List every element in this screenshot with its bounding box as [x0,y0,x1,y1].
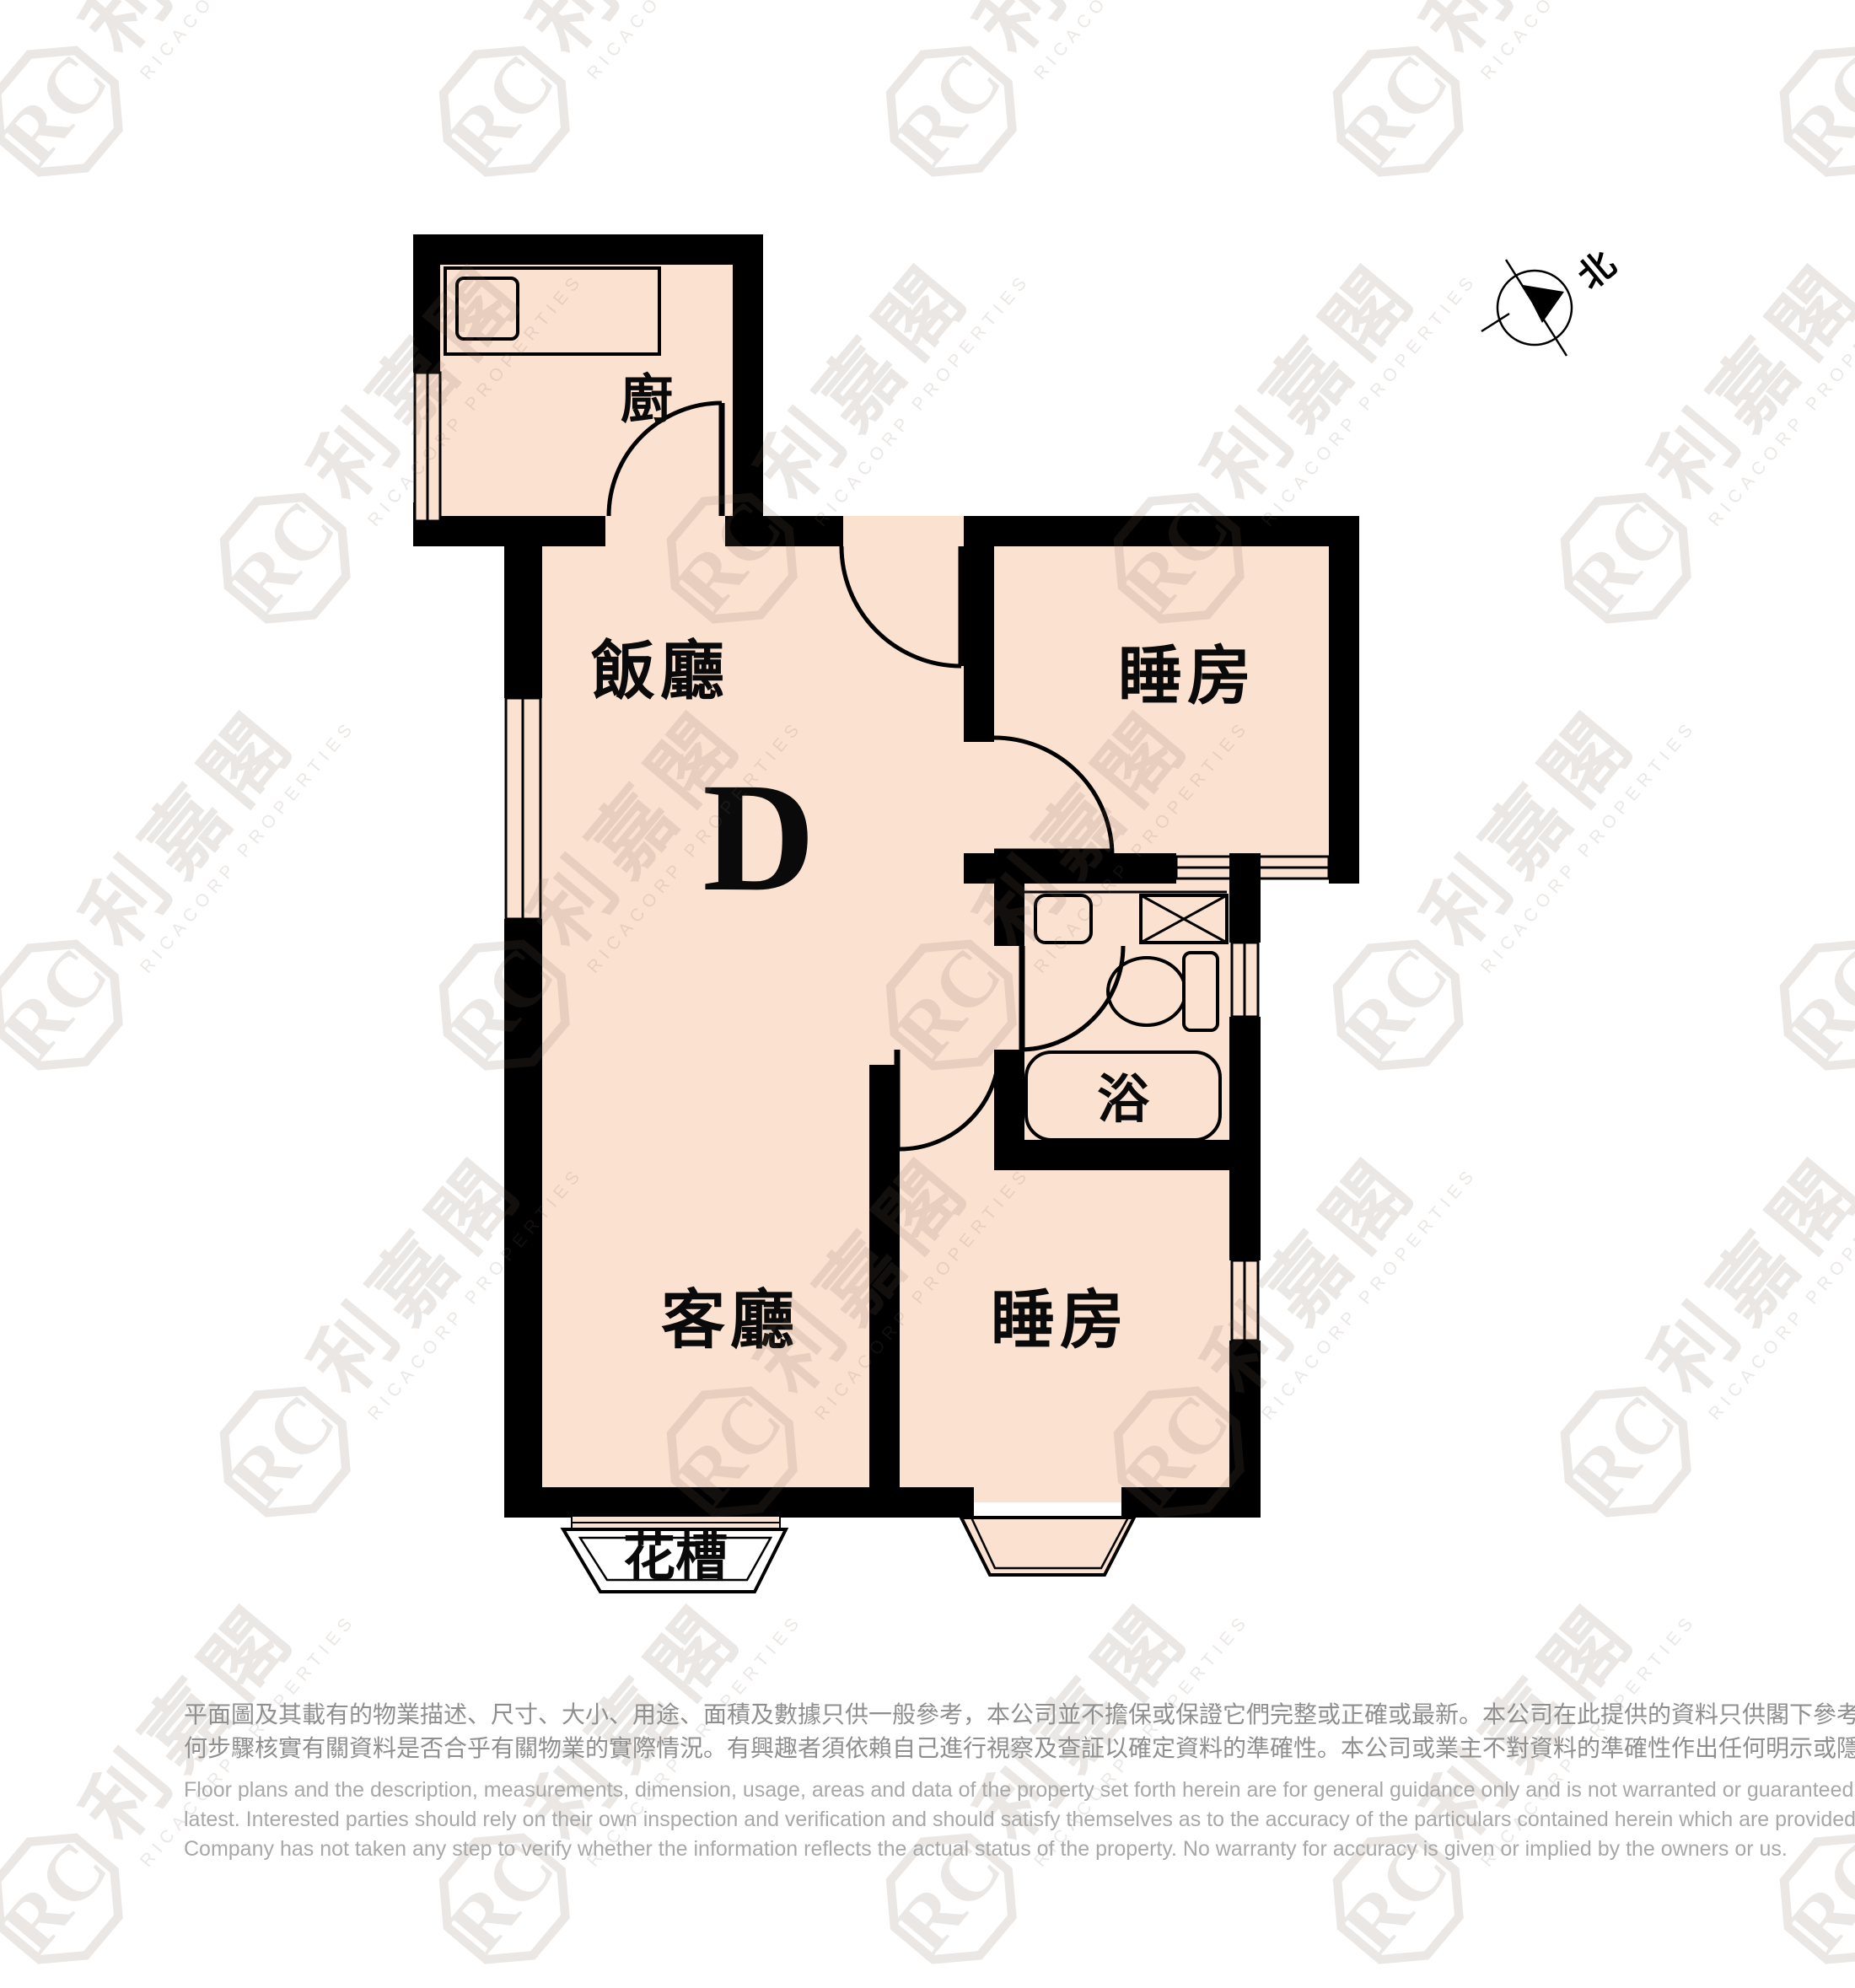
bedroom-bottom-label: 睡房 [991,1285,1129,1357]
disclaimer-cn-line1: 平面圖及其載有的物業描述、尺寸、大小、用途、面積及數據只供一般參考，本公司並不擔… [184,1698,1702,1732]
living-window [506,698,540,919]
north-label: 北 [1570,244,1622,297]
dining-label: 飯廳 [591,636,729,707]
floor-plan: 廚 飯廳 D 睡房 浴 客廳 睡房 花槽 北 [0,0,1855,1855]
bedroom-top-label: 睡房 [1118,641,1256,712]
kitchen-window [415,373,440,521]
unit-letter: D [702,751,815,924]
planter-label: 花槽 [623,1529,728,1587]
north-arrow-icon [1523,285,1564,323]
bedroom-bottom-floor [884,1065,1245,1502]
bathroom-window [1232,943,1258,1017]
disclaimer-en-line2: latest. Interested parties should rely o… [184,1805,1702,1835]
disclaimer: 平面圖及其載有的物業描述、尺寸、大小、用途、面積及數據只供一般參考，本公司並不擔… [184,1698,1702,1864]
living-label: 客廳 [661,1285,799,1357]
kitchen-floor [417,250,748,529]
toilet [1108,953,1218,1030]
bedroom-bottom-window [1232,1260,1258,1341]
disclaimer-en-line1: Floor plans and the description, measure… [184,1776,1702,1805]
disclaimer-cn-line2: 何步驟核實有關資料是否合乎有關物業的實際情況。有興趣者須依賴自己進行視察及查証以… [184,1732,1702,1765]
disclaimer-en-line3: Company has not taken any step to verify… [184,1835,1702,1864]
bay-window [961,1518,1134,1575]
bath-label: 浴 [1097,1071,1150,1129]
kitchen-label: 廚 [621,370,673,429]
bedroom-top-window [1176,853,1329,884]
north-compass: 北 [1481,244,1623,356]
